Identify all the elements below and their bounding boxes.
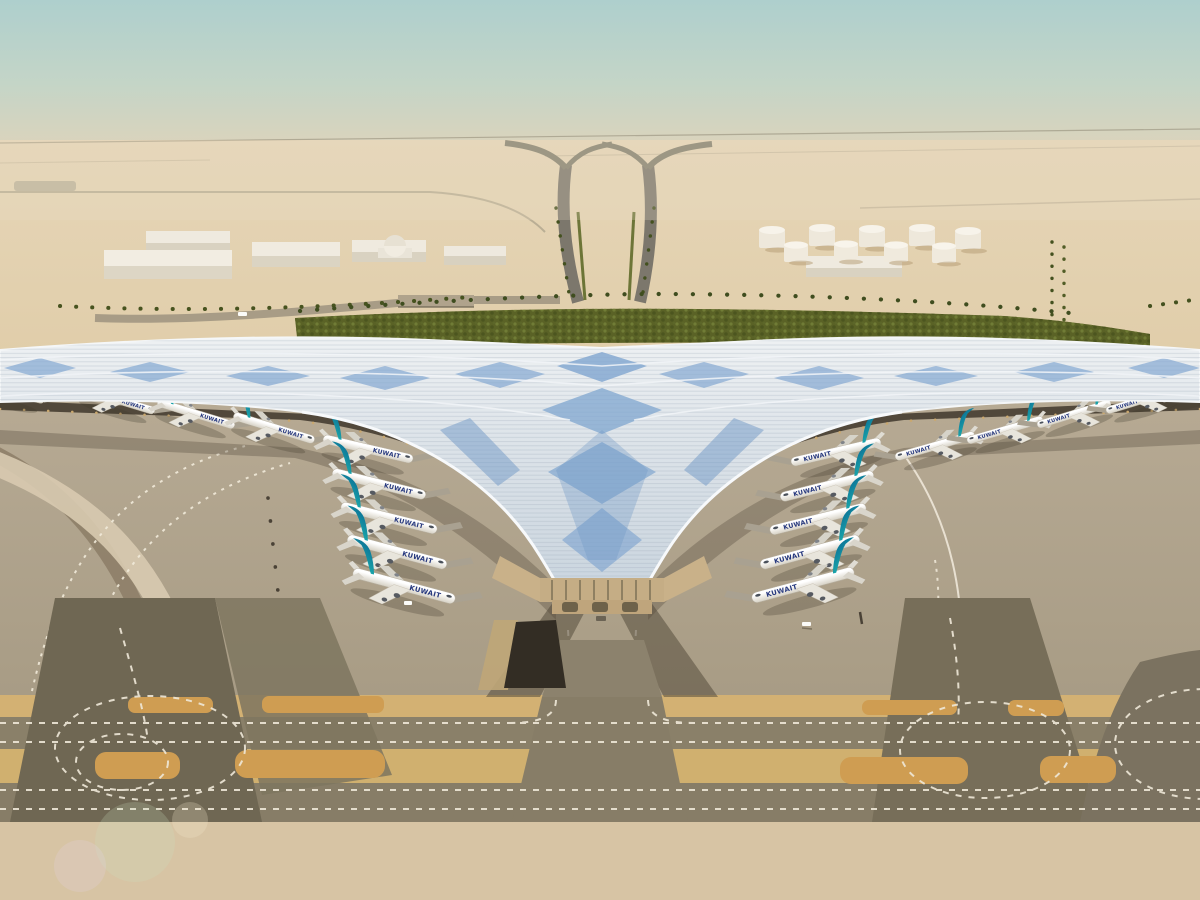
airport-aerial-render: KUWAIT KUWAIT — [0, 0, 1200, 900]
taxiway-connector-center — [512, 697, 688, 822]
car — [238, 312, 247, 316]
service-vehicle — [802, 622, 811, 626]
service-equipment — [596, 616, 606, 621]
sky — [0, 0, 1200, 152]
haze-overlay — [0, 140, 1200, 220]
service-vehicle — [404, 601, 412, 605]
